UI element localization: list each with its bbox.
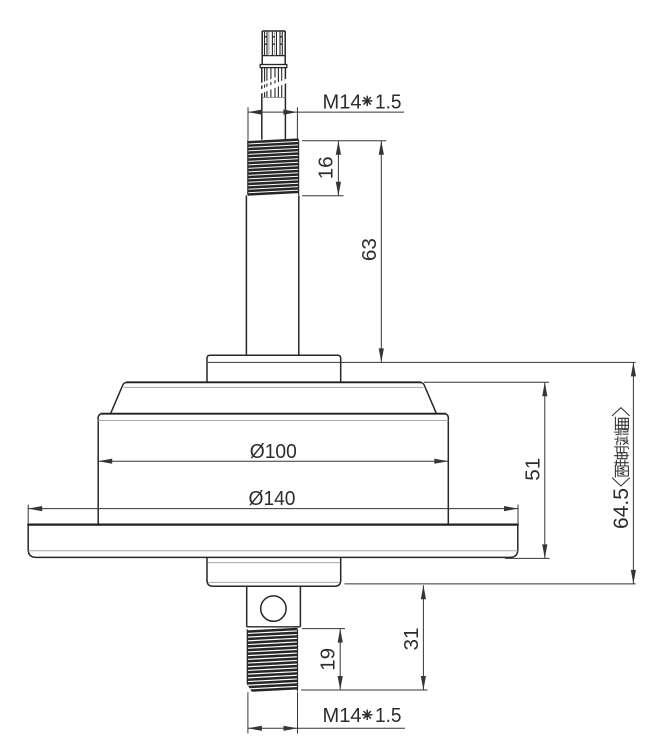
svg-text:Ø100: Ø100 xyxy=(250,441,297,463)
svg-text:31: 31 xyxy=(401,628,423,651)
svg-text:M14: M14 xyxy=(323,705,362,727)
svg-text:M14: M14 xyxy=(323,91,362,113)
svg-text:1.5: 1.5 xyxy=(375,705,402,727)
svg-text:63: 63 xyxy=(359,238,381,261)
svg-text:19: 19 xyxy=(318,648,340,671)
svg-text:1.5: 1.5 xyxy=(375,91,402,113)
svg-text:64.5: 64.5 xyxy=(609,488,633,529)
svg-text:51: 51 xyxy=(522,458,544,481)
svg-text:Ø140: Ø140 xyxy=(249,488,296,510)
svg-text:16: 16 xyxy=(316,156,338,179)
